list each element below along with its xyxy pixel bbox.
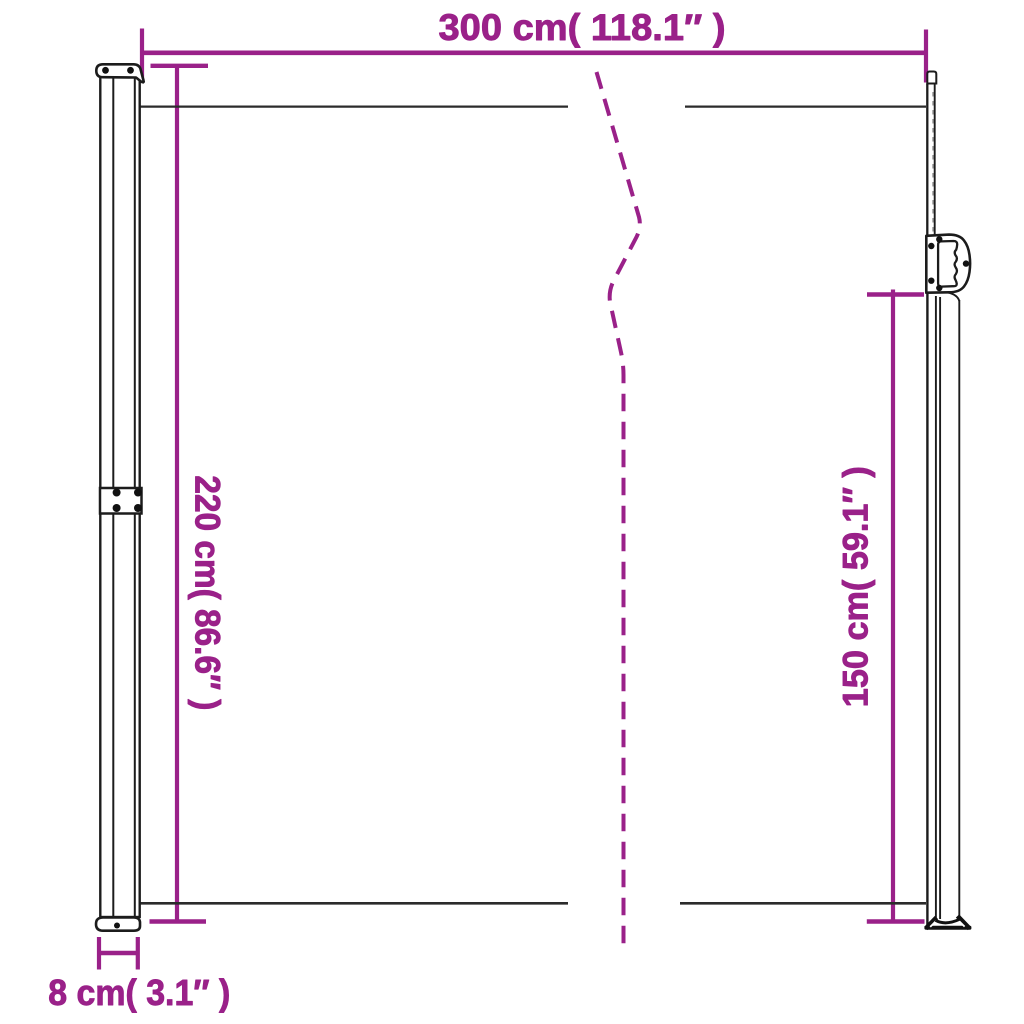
svg-text:300 cm( 118.1″ ): 300 cm( 118.1″ ) bbox=[439, 7, 726, 48]
svg-text:220 cm( 86.6″ ): 220 cm( 86.6″ ) bbox=[187, 475, 226, 710]
svg-text:150 cm( 59.1″ ): 150 cm( 59.1″ ) bbox=[837, 466, 876, 707]
svg-text:8 cm( 3.1″ ): 8 cm( 3.1″ ) bbox=[48, 972, 230, 1013]
